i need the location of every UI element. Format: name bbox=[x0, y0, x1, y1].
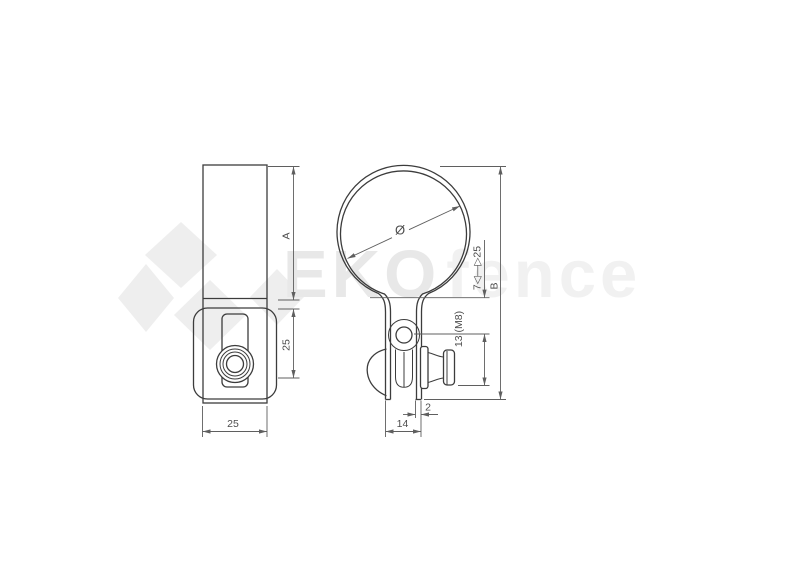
dim-label-width: 25 bbox=[227, 418, 239, 430]
diameter-line-lower bbox=[348, 238, 393, 259]
dim-label-band-height: 25 bbox=[281, 339, 293, 351]
pivot-hole-circle bbox=[396, 327, 412, 343]
dim-label-diameter: Ø bbox=[395, 223, 405, 238]
bolt-neck-top bbox=[428, 353, 444, 358]
technical-drawing: A 25 25 bbox=[0, 0, 800, 566]
nut-outer-circle bbox=[217, 346, 254, 383]
bolt-washer bbox=[421, 347, 429, 389]
bolt-neck-bottom bbox=[428, 378, 444, 383]
diameter-line-upper bbox=[409, 206, 460, 230]
side-view-dimensions: A 25 25 bbox=[203, 167, 300, 438]
side-view bbox=[194, 165, 277, 403]
front-view: Ø bbox=[337, 165, 470, 399]
bolt-head bbox=[444, 350, 455, 385]
dim-label-range: 7◁—▷25 bbox=[472, 246, 484, 290]
dim-label-overall: B bbox=[489, 282, 501, 289]
dim-label-bolt: 13 (M8) bbox=[453, 311, 465, 347]
dim-label-thickness: 2 bbox=[425, 402, 431, 414]
dim-label-gap: 14 bbox=[397, 418, 409, 430]
band-end-bulge bbox=[367, 349, 386, 396]
drawing-canvas: EKOfence A bbox=[0, 0, 800, 566]
dim-label-a: A bbox=[281, 232, 293, 239]
